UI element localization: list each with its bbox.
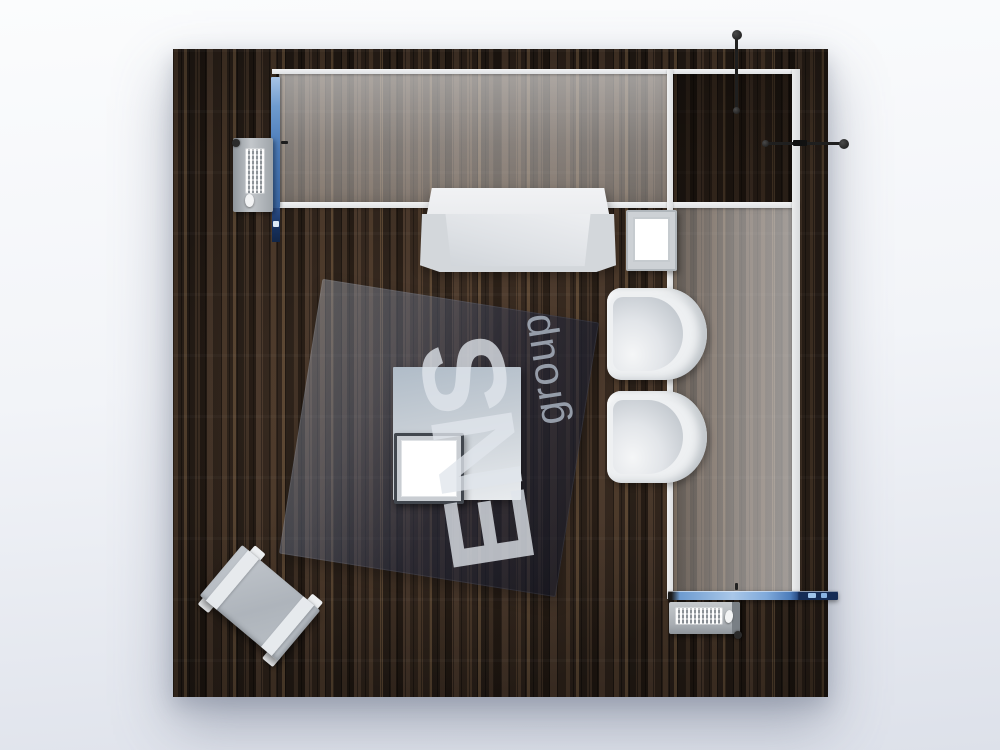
wall-cube-table-top bbox=[633, 217, 670, 262]
wall-handle-tick bbox=[735, 583, 738, 590]
lounge-chair-lower-seat bbox=[613, 400, 683, 474]
glass-wall-top bbox=[279, 74, 667, 202]
keyboard bbox=[676, 608, 722, 624]
keyboard bbox=[246, 149, 264, 193]
chair-post-knob bbox=[232, 139, 240, 147]
spotlight-top-head bbox=[732, 30, 742, 40]
spotlight-right-mount bbox=[793, 140, 807, 146]
wall-frame-top bbox=[272, 69, 800, 74]
spotlight-right-head bbox=[839, 139, 849, 149]
led-bar-logo-notch bbox=[821, 593, 827, 598]
render-canvas: ENS group bbox=[0, 0, 1000, 750]
chair-post-knob bbox=[734, 631, 742, 639]
led-bar-logo-notch bbox=[808, 593, 816, 598]
center-cube-seat bbox=[394, 433, 464, 504]
center-cube-seat-top bbox=[401, 440, 457, 497]
wall-cube-table bbox=[626, 210, 677, 271]
workstation-edge bbox=[732, 602, 740, 634]
lounge-chair-lower bbox=[607, 391, 707, 483]
workstation-left bbox=[233, 138, 273, 212]
wall-handle-tick bbox=[281, 141, 288, 144]
workstation-bottom bbox=[669, 602, 740, 634]
led-strip-left-notch bbox=[273, 221, 279, 227]
lounge-chair-upper-seat bbox=[613, 297, 683, 371]
lounge-chair-upper bbox=[607, 288, 707, 380]
spotlight-right-end bbox=[762, 140, 769, 147]
spotlight-top-arm bbox=[735, 38, 738, 112]
wall-frame-vertical-outer bbox=[792, 69, 800, 599]
spotlight-top-end bbox=[733, 107, 740, 114]
mouse-device bbox=[245, 194, 254, 207]
storage-room bbox=[673, 74, 792, 202]
reception-counter bbox=[420, 188, 616, 272]
